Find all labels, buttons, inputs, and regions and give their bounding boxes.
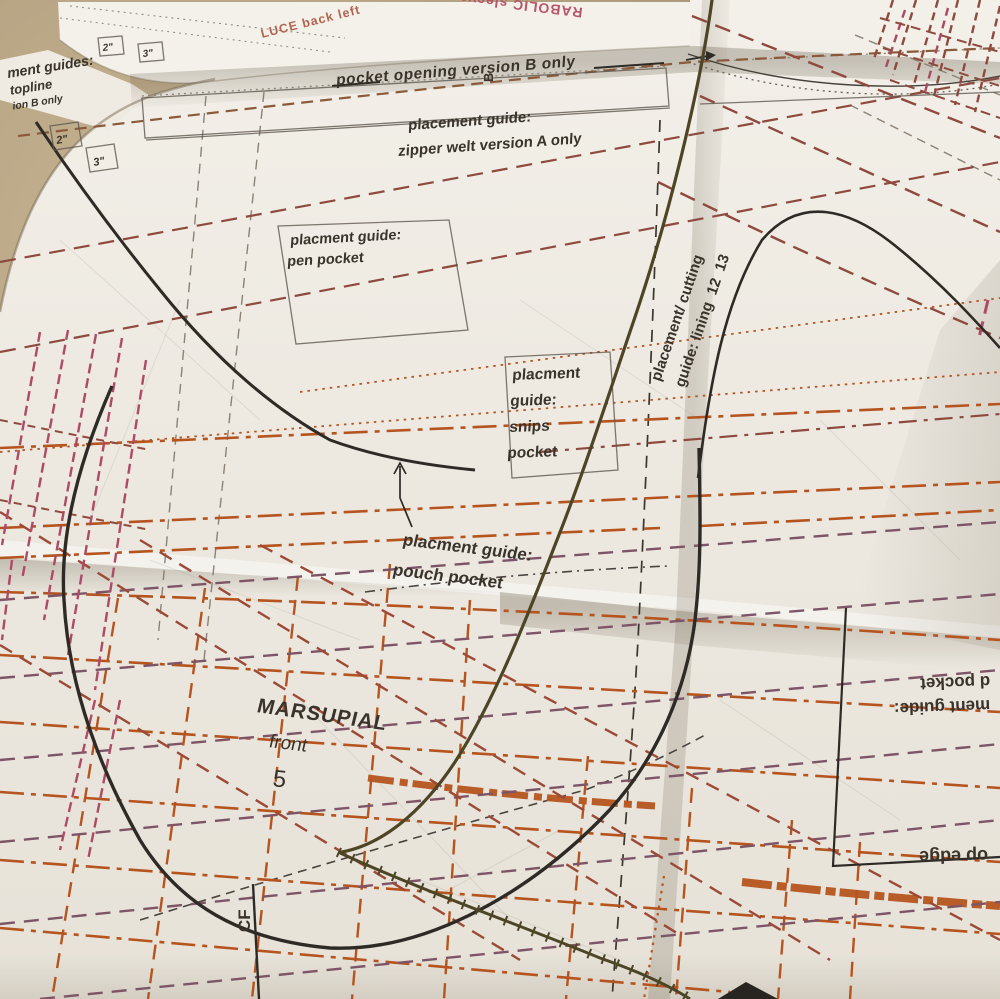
card-pocket-label-2: d pocket [920, 672, 991, 693]
pattern-photo: ment guides: topline ion B only LUCE bac… [0, 0, 1000, 999]
scale-label-2a: 2" [101, 42, 114, 54]
top-edge-label: op edge [919, 846, 988, 867]
marker-b-label: B [481, 73, 496, 82]
pattern-sheet-scene: ment guides: topline ion B only LUCE bac… [0, 0, 1000, 999]
card-pocket-label-1: ment guide: [894, 696, 991, 718]
snips-label-1: placment [512, 365, 581, 384]
scale-label-3a: 3" [142, 48, 154, 60]
snips-label-2: guide: [510, 391, 558, 410]
snips-label-4: pocket [507, 443, 558, 462]
snips-label-3: snips [509, 418, 551, 436]
cf-label: CF [235, 909, 254, 932]
